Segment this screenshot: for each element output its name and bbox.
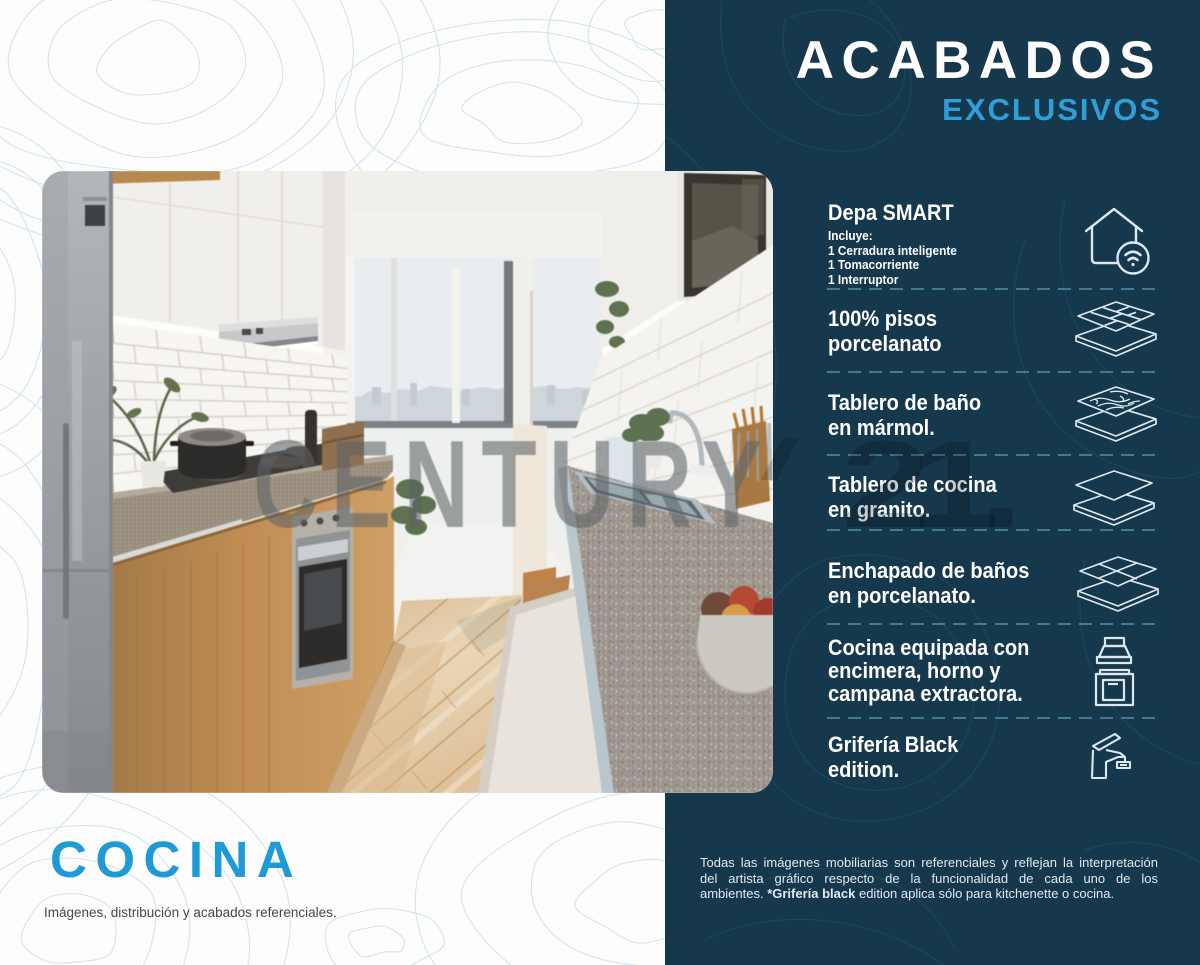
- svg-text:21.: 21.: [841, 416, 1013, 554]
